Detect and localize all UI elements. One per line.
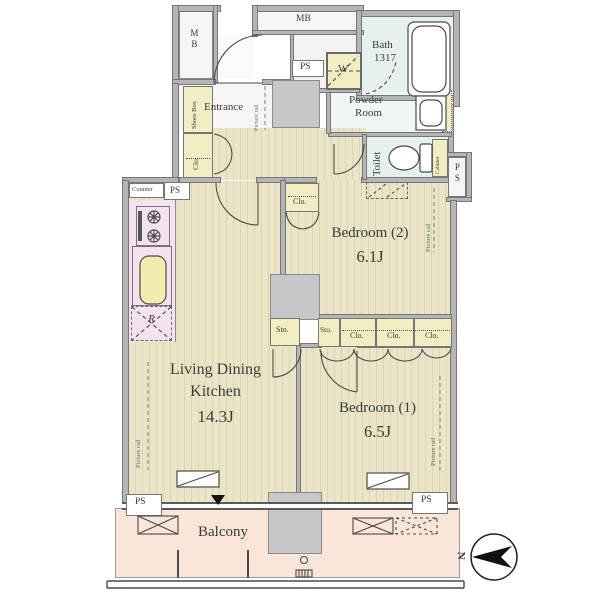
ldk-door-arc — [216, 183, 258, 225]
cabinet-label: Cabinet — [436, 157, 442, 174]
bedroom1-size: 6.5J — [305, 423, 450, 440]
closet-row-label-3: Clo. — [425, 332, 439, 340]
closet-fold-doors — [320, 349, 451, 361]
ac-unit-box-dashed — [396, 518, 437, 534]
north-label: N — [454, 552, 466, 560]
entrance-door-arc — [214, 35, 262, 83]
storage-ldk-label: Sto. — [276, 326, 289, 334]
closet-row-label-0: Sto. — [320, 326, 332, 334]
closet-door-arc — [214, 154, 232, 174]
powder-room-name2: Room — [355, 108, 382, 120]
toilet-name: Toilet — [372, 152, 383, 176]
balcony-cap — [301, 557, 308, 564]
kitchen-sink — [140, 256, 166, 304]
bedroom2-size: 6.1J — [290, 248, 450, 265]
ps-kitchen-label: PS — [170, 186, 180, 195]
burner-icon — [148, 211, 160, 242]
ps-bottom-left-label: PS — [135, 498, 146, 508]
bathtub-inner — [412, 26, 446, 92]
bedroom1-door-arc — [321, 351, 357, 392]
ps-top-label: PS — [300, 63, 311, 73]
bedroom1-name: Bedroom (1) — [305, 401, 450, 417]
compass — [471, 534, 517, 580]
ps-right-label: PS — [452, 162, 461, 184]
mb-top-label: MB — [296, 15, 311, 25]
ldk-name2: Kitchen — [138, 384, 293, 401]
floor-plan: MB MB PS W Bath 1317 Powder Room Toilet … — [0, 0, 600, 600]
balcony-rail — [107, 581, 464, 588]
picture-rail-label: Picture rail — [254, 105, 260, 132]
bath-door-arc — [366, 62, 396, 94]
bedroom2-name: Bedroom (2) — [290, 226, 450, 242]
bedroom2-clo-label: Clo. — [293, 198, 307, 206]
ldk-size: 14.3J — [138, 408, 293, 426]
closet-row-label-1: Clo. — [350, 332, 364, 340]
balcony-partition — [178, 550, 248, 578]
balcony-name: Balcony — [198, 525, 248, 541]
entrance-name: Entrance — [204, 102, 243, 114]
toilet-bowl — [389, 146, 419, 170]
bath-name: Bath — [372, 40, 393, 52]
opening-dashes — [369, 184, 405, 197]
ac-unit-box — [138, 516, 393, 534]
shoes-box-label: Shoes Box — [192, 101, 199, 129]
sash-marker — [211, 495, 225, 505]
closet-row-label-2: Clo. — [387, 332, 401, 340]
balcony-drain-hatch — [299, 570, 308, 577]
ldk-name1: Living Dining — [138, 362, 293, 379]
washer-label: W — [338, 64, 348, 76]
closet-door-arc — [214, 134, 232, 154]
mb-left-label: MB — [189, 28, 198, 50]
powder-room-name1: Powder — [349, 95, 383, 107]
toilet-tank — [420, 144, 432, 172]
counter-label: Counter — [132, 187, 153, 194]
vanity-bowl — [420, 100, 442, 126]
picture-rail-label: Picture rail — [431, 437, 438, 466]
powder-door-arc — [334, 144, 364, 174]
picture-rail-label: Picture rail — [136, 439, 143, 468]
ps-bottom-right-label: PS — [421, 496, 432, 506]
plan-linework — [0, 0, 600, 600]
entrance-clo-label: Clo. — [192, 157, 200, 170]
fridge-label: R — [131, 314, 172, 326]
bath-size: 1317 — [374, 53, 396, 65]
balcony-drain — [296, 570, 312, 577]
